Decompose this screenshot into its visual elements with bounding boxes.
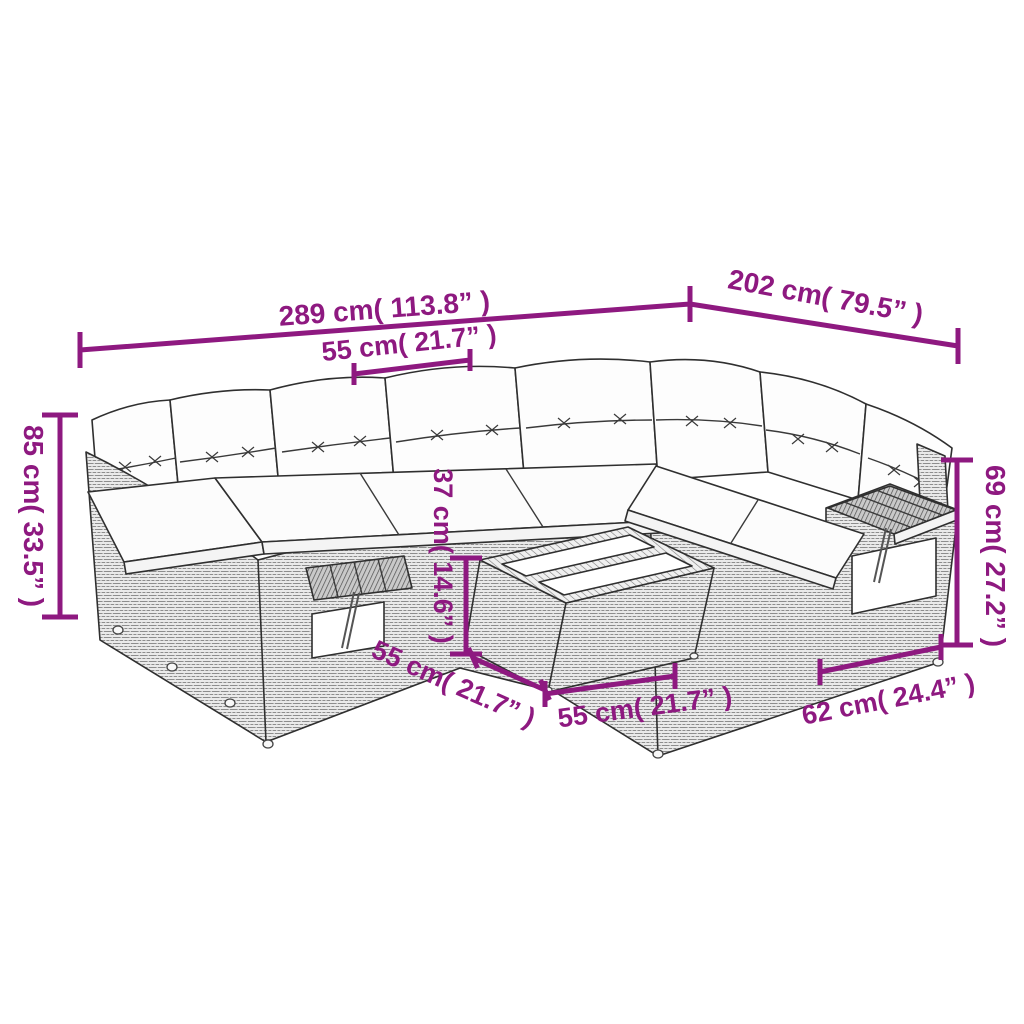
- table-foot-right: [690, 653, 698, 659]
- sofa-dimension-diagram: 289 cm( 113.8” ) 55 cm( 21.7” ) 202 cm( …: [0, 0, 1024, 1024]
- dim-overall-height-label: 85 cm( 33.5” ): [18, 425, 49, 607]
- foot-right-wing: [653, 750, 663, 758]
- dim-overall-depth-label: 202 cm( 79.5” ): [726, 263, 926, 330]
- dim-table-height-label: 37 cm( 14.6” ): [428, 468, 458, 644]
- back-cushion-right-1: [760, 372, 866, 500]
- dim-overall-height: 85 cm( 33.5” ): [18, 415, 78, 617]
- dim-backrest-height-label: 69 cm( 27.2” ): [980, 465, 1011, 647]
- dim-overall-depth: 202 cm( 79.5” ): [690, 263, 958, 364]
- foot-cap-1: [113, 626, 123, 634]
- foot-cap-2: [167, 663, 177, 671]
- foot-cap-3: [225, 699, 235, 707]
- diagram-canvas: 289 cm( 113.8” ) 55 cm( 21.7” ) 202 cm( …: [0, 0, 1024, 1024]
- foot-front-left: [263, 740, 273, 748]
